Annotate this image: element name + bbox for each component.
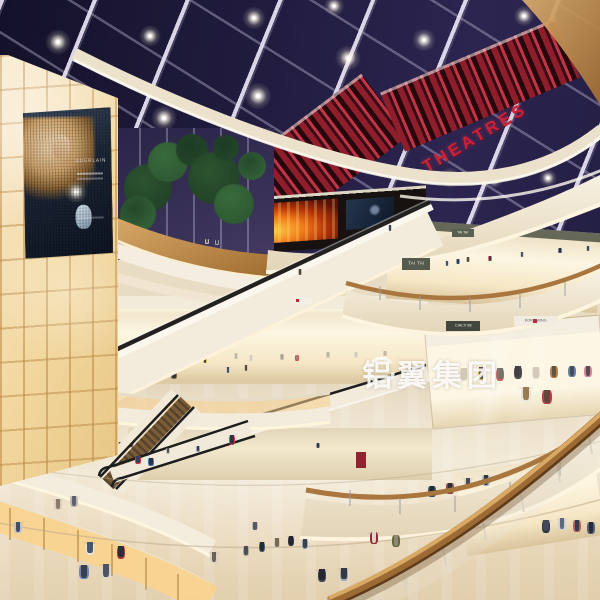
person-legs [299,269,302,275]
person-figure [540,520,551,550]
person-legs [72,496,76,506]
person-legs [87,542,92,553]
person-legs [230,435,234,444]
person-legs [260,542,264,551]
person-figure [297,269,303,284]
person-legs [589,522,594,533]
person-figure [115,546,126,576]
person-figure [241,546,250,570]
person-legs [275,538,279,547]
person-figure [557,518,568,546]
person-legs [575,520,580,531]
watermark-text: 铝翼集团 [362,351,502,395]
people-ground-level [0,0,600,600]
person-figure [195,446,200,460]
person-figure [286,536,295,560]
person-figure [387,225,393,240]
person-figure [135,456,142,474]
person-figure [257,542,266,566]
person-legs [560,518,565,529]
person-legs [394,535,399,546]
person-legs [372,532,377,543]
person-figure [300,539,309,563]
person-figure [572,520,583,548]
person-legs [103,564,109,577]
person-figure [338,568,349,598]
person-legs [341,568,346,579]
person-figure [272,538,281,562]
person-legs [244,546,248,555]
person-figure [165,448,170,462]
person-legs [317,443,319,448]
person-legs [56,499,60,509]
person-figure [251,522,259,542]
person-legs [543,520,548,531]
person-legs [149,458,152,465]
person-figure [13,522,23,548]
person-figure [228,435,237,458]
person-figure [148,458,155,476]
person-legs [136,456,139,463]
person-figure [209,552,219,578]
person-legs [118,546,123,557]
mall-atrium-rendering: THEATRES [0,0,600,600]
person-legs [303,539,307,548]
watermark: 铝翼集团 [362,348,562,398]
person-figure [100,564,113,597]
person-legs [289,536,293,545]
person-figure [369,532,380,560]
person-figure [586,522,597,550]
person-legs [319,569,324,580]
person-figure [78,565,91,598]
person-legs [81,565,87,578]
person-figure [53,499,63,524]
person-legs [253,522,256,530]
person-figure [316,443,321,456]
person-legs [16,522,21,532]
person-legs [389,225,392,231]
person-figure [316,569,327,599]
person-legs [212,552,217,562]
person-figure [69,496,79,521]
person-figure [391,535,402,563]
